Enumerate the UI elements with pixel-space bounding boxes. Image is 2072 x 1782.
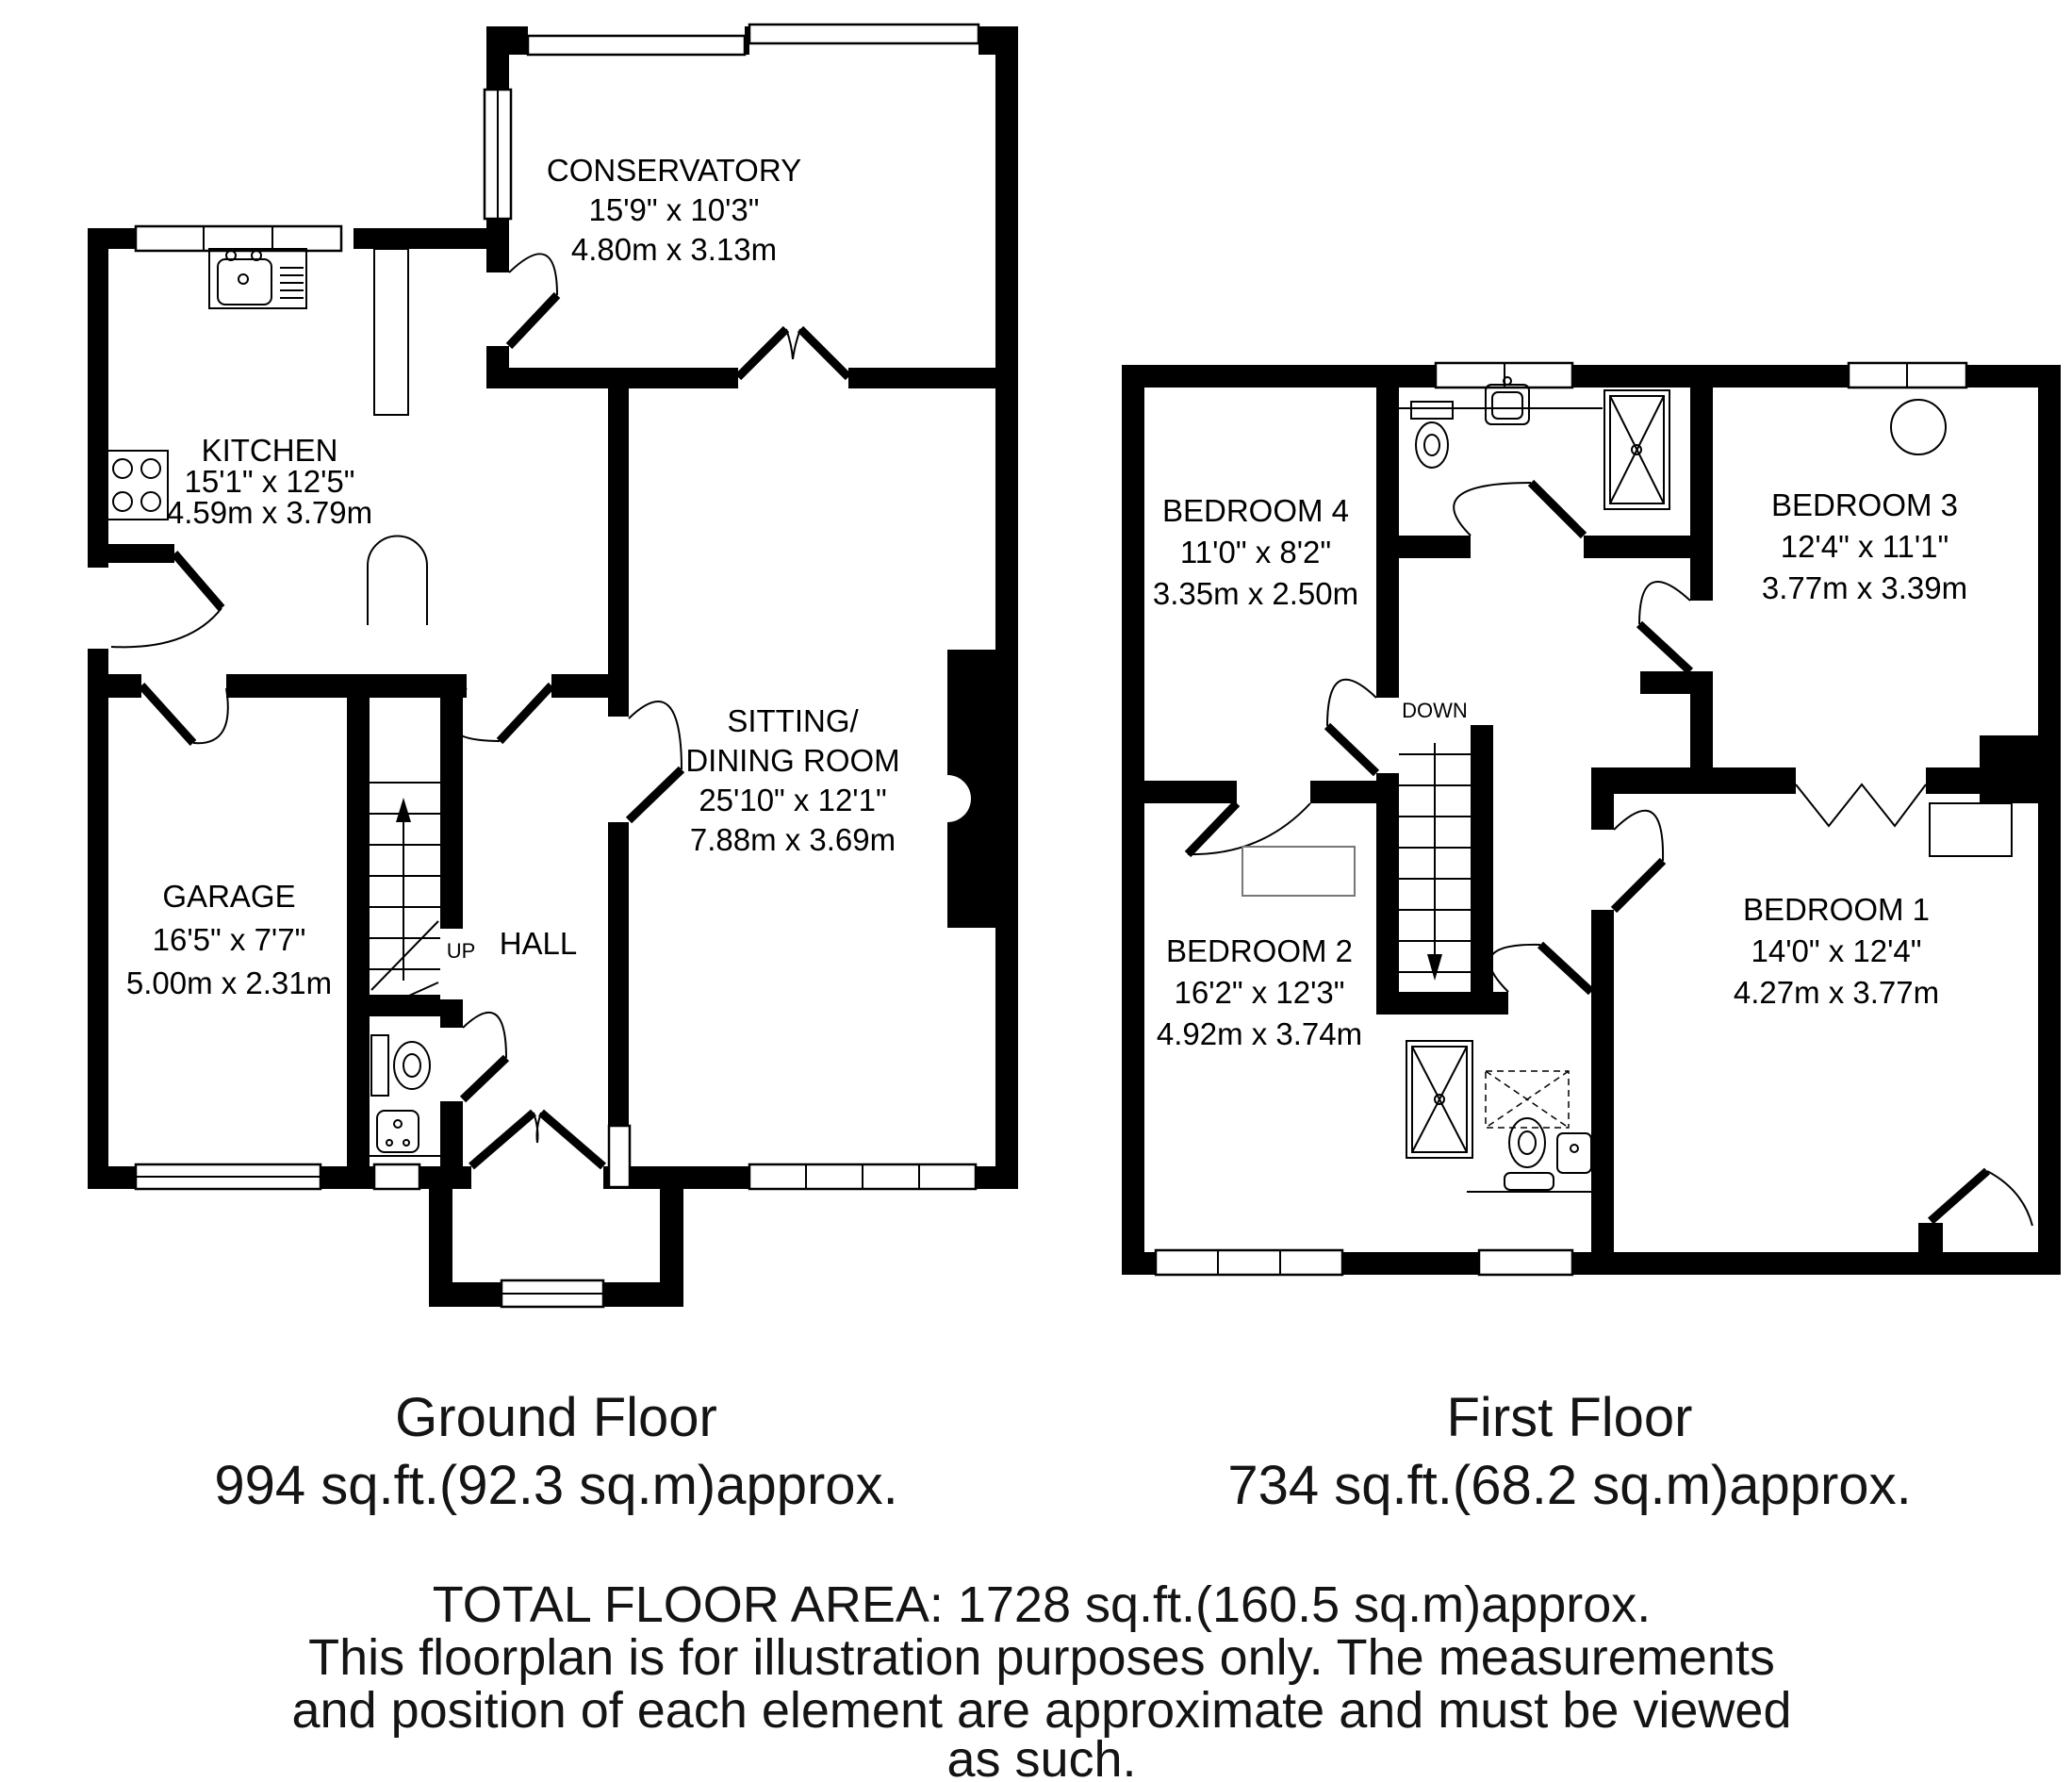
side-door <box>174 553 222 608</box>
conservatory-french-door-left <box>738 329 786 377</box>
disclaimer-line-3: as such. <box>946 1731 1136 1782</box>
bathroom-shower-icon <box>1604 390 1669 509</box>
room-dims-garage-imperial: 16'5" x 7'7" <box>153 922 306 957</box>
room-dims-bedroom3-metric: 3.77m x 3.39m <box>1762 570 1967 605</box>
ensuite-door <box>1540 945 1591 992</box>
sitting-room-door <box>629 769 682 820</box>
room-dims-bedroom1-metric: 4.27m x 3.77m <box>1734 975 1939 1010</box>
first-floor-title: First Floor <box>1447 1387 1693 1448</box>
room-label-sitting-2: DINING ROOM <box>685 743 899 778</box>
stairs-up-label: UP <box>447 939 476 963</box>
room-dims-conservatory-metric: 4.80m x 3.13m <box>571 232 777 267</box>
room-dims-bedroom3-imperial: 12'4" x 11'1" <box>1781 529 1949 564</box>
bathroom-toilet-icon <box>1411 402 1453 468</box>
bedroom4-door <box>1327 726 1376 773</box>
room-dims-garage-metric: 5.00m x 2.31m <box>126 965 332 1000</box>
chimney-breast-first-floor <box>1980 735 2038 803</box>
ground-floor-plan: CONSERVATORY 15'9" x 10'3" 4.80m x 3.13m… <box>88 25 1018 1307</box>
hall-side-glazing <box>609 1126 630 1187</box>
bathroom-door <box>1531 483 1584 536</box>
ensuite-window <box>1479 1250 1572 1275</box>
room-dims-conservatory-imperial: 15'9" x 10'3" <box>589 192 760 227</box>
kitchen-sink-icon <box>209 249 306 308</box>
kitchen-window <box>136 226 341 251</box>
bedroom2-wardrobe <box>1242 847 1355 896</box>
ground-floor-walls <box>88 26 1018 1307</box>
room-dims-kitchen-imperial: 15'1" x 12'5" <box>185 464 355 499</box>
bedroom2-window <box>1156 1250 1342 1275</box>
bedroom1-wardrobe-zigzag <box>1796 784 1926 826</box>
room-label-kitchen: KITCHEN <box>202 433 338 468</box>
stairs-up <box>370 783 440 1013</box>
bedroom3-door <box>1639 624 1690 671</box>
captions: Ground Floor 994 sq.ft.(92.3 sq.m)approx… <box>214 1387 1911 1782</box>
room-dims-kitchen-metric: 4.59m x 3.79m <box>167 495 372 530</box>
room-label-bedroom4: BEDROOM 4 <box>1162 493 1349 528</box>
first-floor-plan: BEDROOM 4 11'0" x 8'2" 3.35m x 2.50m BED… <box>1122 363 2061 1275</box>
room-label-sitting-1: SITTING/ <box>727 703 859 738</box>
floorplan-drawing: CONSERVATORY 15'9" x 10'3" 4.80m x 3.13m… <box>0 0 2072 1782</box>
wc-window <box>374 1164 419 1189</box>
conservatory-kitchen-door <box>509 295 557 346</box>
ground-floor-windows <box>136 25 978 1307</box>
wc-toilet-icon <box>371 1035 430 1096</box>
conservatory-top-window-1 <box>528 36 745 55</box>
room-dims-sitting-imperial: 25'10" x 12'1" <box>699 783 886 817</box>
bedroom1-closet-door <box>1931 1171 1987 1221</box>
hob-icon <box>106 451 168 520</box>
disclaimer-line-2: and position of each element are approxi… <box>292 1682 1792 1739</box>
wc-door <box>463 1058 506 1099</box>
ensuite-toilet-icon <box>1505 1118 1554 1190</box>
disclaimer-line-1: This floorplan is for illustration purpo… <box>308 1629 1775 1686</box>
room-dims-bedroom1-imperial: 14'0" x 12'4" <box>1751 933 1922 968</box>
room-dims-sitting-metric: 7.88m x 3.69m <box>690 822 896 857</box>
front-door-right-leaf <box>541 1113 603 1166</box>
room-label-bedroom3: BEDROOM 3 <box>1771 487 1958 522</box>
bedroom1-door <box>1614 861 1663 910</box>
bedroom2-door <box>1188 803 1237 854</box>
room-label-bedroom2: BEDROOM 2 <box>1166 933 1353 968</box>
bathroom-basin-icon <box>1486 377 1529 424</box>
room-label-bedroom1: BEDROOM 1 <box>1743 892 1930 927</box>
bedroom3-basin-icon <box>1891 400 1946 454</box>
ensuite-basin-icon <box>1467 1133 1591 1192</box>
ensuite-shower-icon <box>1406 1041 1472 1158</box>
up-arrow-icon <box>396 798 411 822</box>
kitchen-worktop <box>374 249 408 415</box>
bedroom1-alcove <box>1930 803 2012 856</box>
conservatory-top-window-2 <box>749 25 978 43</box>
wc-basin-icon <box>370 1111 440 1156</box>
room-dims-bedroom2-metric: 4.92m x 3.74m <box>1157 1016 1362 1051</box>
floorplan-page: CONSERVATORY 15'9" x 10'3" 4.80m x 3.13m… <box>0 0 2072 1782</box>
kitchen-garage-door <box>141 685 193 743</box>
room-dims-bedroom2-imperial: 16'2" x 12'3" <box>1175 975 1345 1010</box>
room-label-garage: GARAGE <box>162 879 295 914</box>
room-dims-bedroom4-imperial: 11'0" x 8'2" <box>1180 535 1331 569</box>
room-label-conservatory: CONSERVATORY <box>547 153 801 188</box>
ground-floor-title: Ground Floor <box>395 1387 717 1448</box>
first-floor-area: 734 sq.ft.(68.2 sq.m)approx. <box>1227 1455 1911 1516</box>
stairs-down-label: DOWN <box>1402 699 1468 722</box>
room-dims-bedroom4-metric: 3.35m x 2.50m <box>1153 576 1358 611</box>
room-label-hall: HALL <box>500 926 578 961</box>
total-floor-area: TOTAL FLOOR AREA: 1728 sq.ft.(160.5 sq.m… <box>433 1576 1652 1633</box>
stairs-down <box>1399 743 1471 981</box>
kitchen-hall-door <box>500 685 551 741</box>
front-door-left-leaf <box>471 1113 534 1166</box>
ground-floor-area: 994 sq.ft.(92.3 sq.m)approx. <box>214 1455 897 1516</box>
kitchen-archway <box>368 536 427 625</box>
down-arrow-icon <box>1427 954 1442 981</box>
conservatory-french-door-right <box>800 329 848 377</box>
